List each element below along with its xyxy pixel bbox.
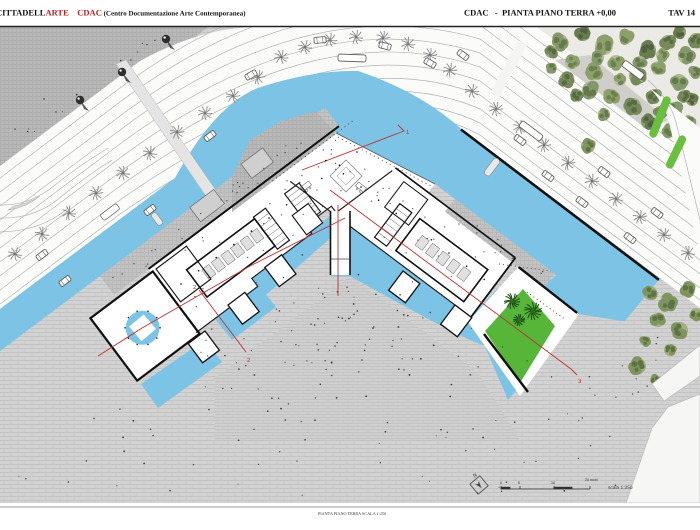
svg-text:5: 5 [518,481,520,485]
svg-text:CITTADELLARTE CDAC (Centro: CITTADELLARTE CDAC (Centro Documentazion… [0,8,246,18]
svg-text:10: 10 [551,481,555,485]
svg-text:scala 1:250: scala 1:250 [608,485,633,491]
svg-text:CDAC - PIANTA PIANO TERRA +: CDAC - PIANTA PIANO TERRA +0,00 [464,8,616,18]
svg-text:0: 0 [500,481,502,485]
svg-text:TAV 14: TAV 14 [668,8,695,18]
svg-text:20 metri: 20 metri [585,478,598,482]
svg-text:PIANTA PIANO TERRA SCALA 1:250: PIANTA PIANO TERRA SCALA 1:250 [318,511,386,516]
